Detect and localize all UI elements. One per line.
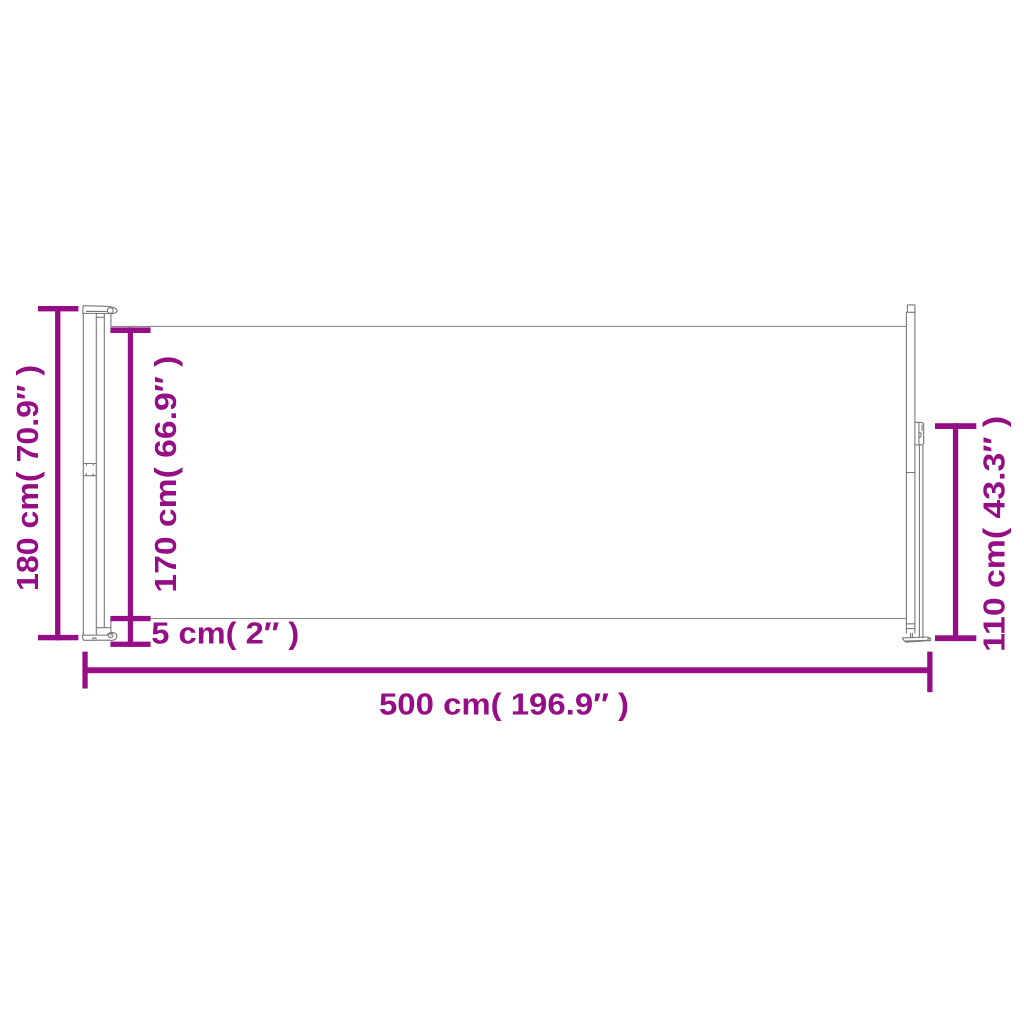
svg-text:180 cm( 70.9″ ): 180 cm( 70.9″ ) [10, 365, 45, 591]
svg-text:110 cm( 43.3″ ): 110 cm( 43.3″ ) [977, 416, 1012, 652]
svg-text:5 cm( 2″ ): 5 cm( 2″ ) [151, 615, 299, 650]
svg-text:500 cm( 196.9″ ): 500 cm( 196.9″ ) [379, 687, 629, 722]
svg-text:170 cm( 66.9″ ): 170 cm( 66.9″ ) [148, 356, 183, 593]
